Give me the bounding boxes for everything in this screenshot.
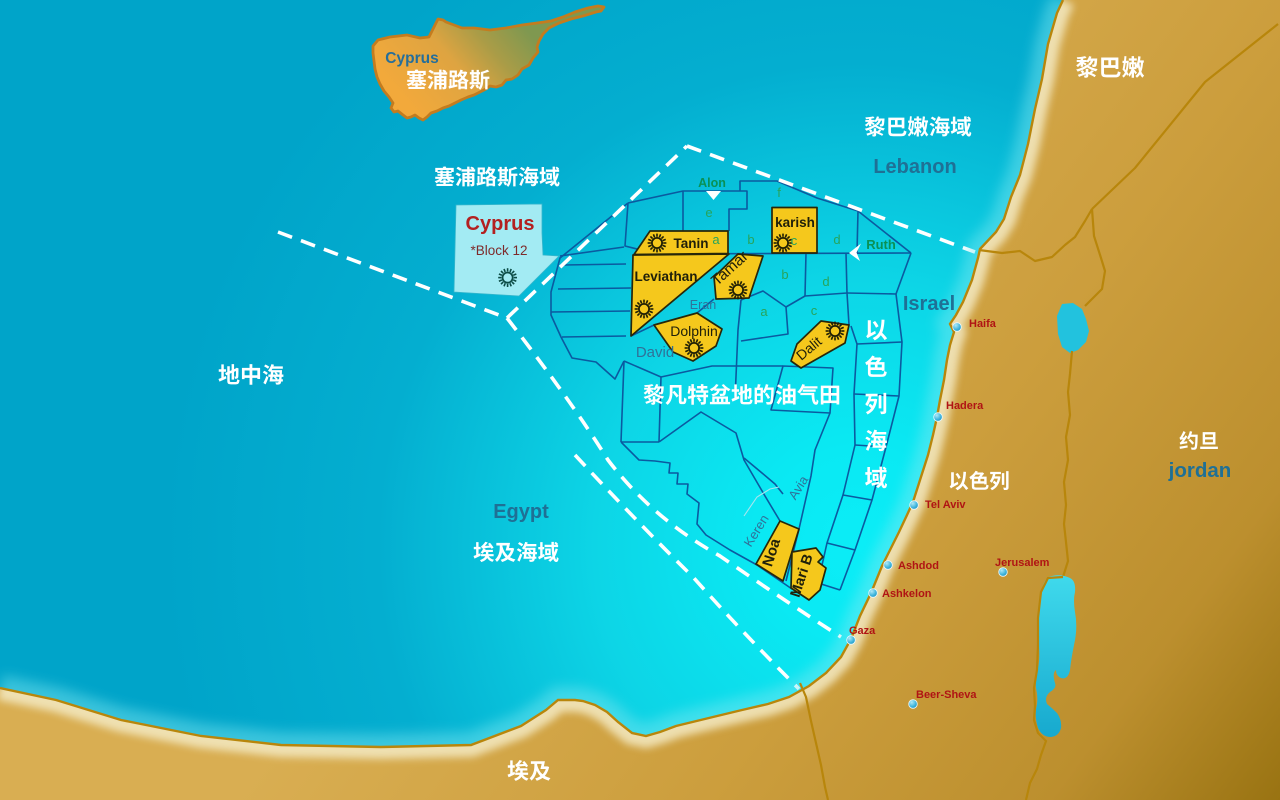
svg-text:e: e: [705, 205, 712, 220]
svg-text:Ashdod: Ashdod: [898, 560, 939, 572]
svg-text:Ruth: Ruth: [866, 237, 896, 252]
svg-text:b: b: [747, 232, 754, 247]
svg-text:Beer-Sheva: Beer-Sheva: [916, 689, 977, 701]
svg-text:jordan: jordan: [1168, 459, 1232, 482]
svg-text:Hadera: Hadera: [946, 400, 984, 412]
svg-text:f: f: [777, 185, 781, 200]
svg-text:c: c: [791, 233, 798, 248]
svg-text:a: a: [760, 304, 768, 319]
svg-text:Tanin: Tanin: [674, 236, 709, 251]
svg-text:Haifa: Haifa: [969, 318, 997, 330]
svg-text:Lebanon: Lebanon: [873, 156, 956, 178]
svg-text:karish: karish: [775, 215, 815, 230]
svg-text:Eran: Eran: [690, 298, 716, 312]
svg-text:d: d: [822, 274, 829, 289]
svg-text:b: b: [781, 267, 788, 282]
svg-text:a: a: [712, 232, 720, 247]
svg-text:Egypt: Egypt: [493, 501, 549, 523]
svg-text:d: d: [833, 232, 840, 247]
svg-text:c: c: [811, 303, 818, 318]
svg-text:Leviathan: Leviathan: [634, 269, 697, 284]
svg-text:Cyprus: Cyprus: [385, 50, 438, 67]
svg-text:Jerusalem: Jerusalem: [995, 557, 1050, 569]
svg-text:Gaza: Gaza: [849, 625, 876, 637]
svg-text:David: David: [636, 344, 674, 361]
svg-text:Tel Aviv: Tel Aviv: [925, 499, 966, 511]
svg-text:Ashkelon: Ashkelon: [882, 588, 932, 600]
svg-text:Cyprus: Cyprus: [466, 213, 535, 235]
svg-text:Israel: Israel: [903, 293, 955, 315]
svg-text:*Block 12: *Block 12: [470, 243, 527, 258]
svg-text:Alon: Alon: [698, 176, 726, 190]
svg-text:Dolphin: Dolphin: [670, 323, 717, 339]
